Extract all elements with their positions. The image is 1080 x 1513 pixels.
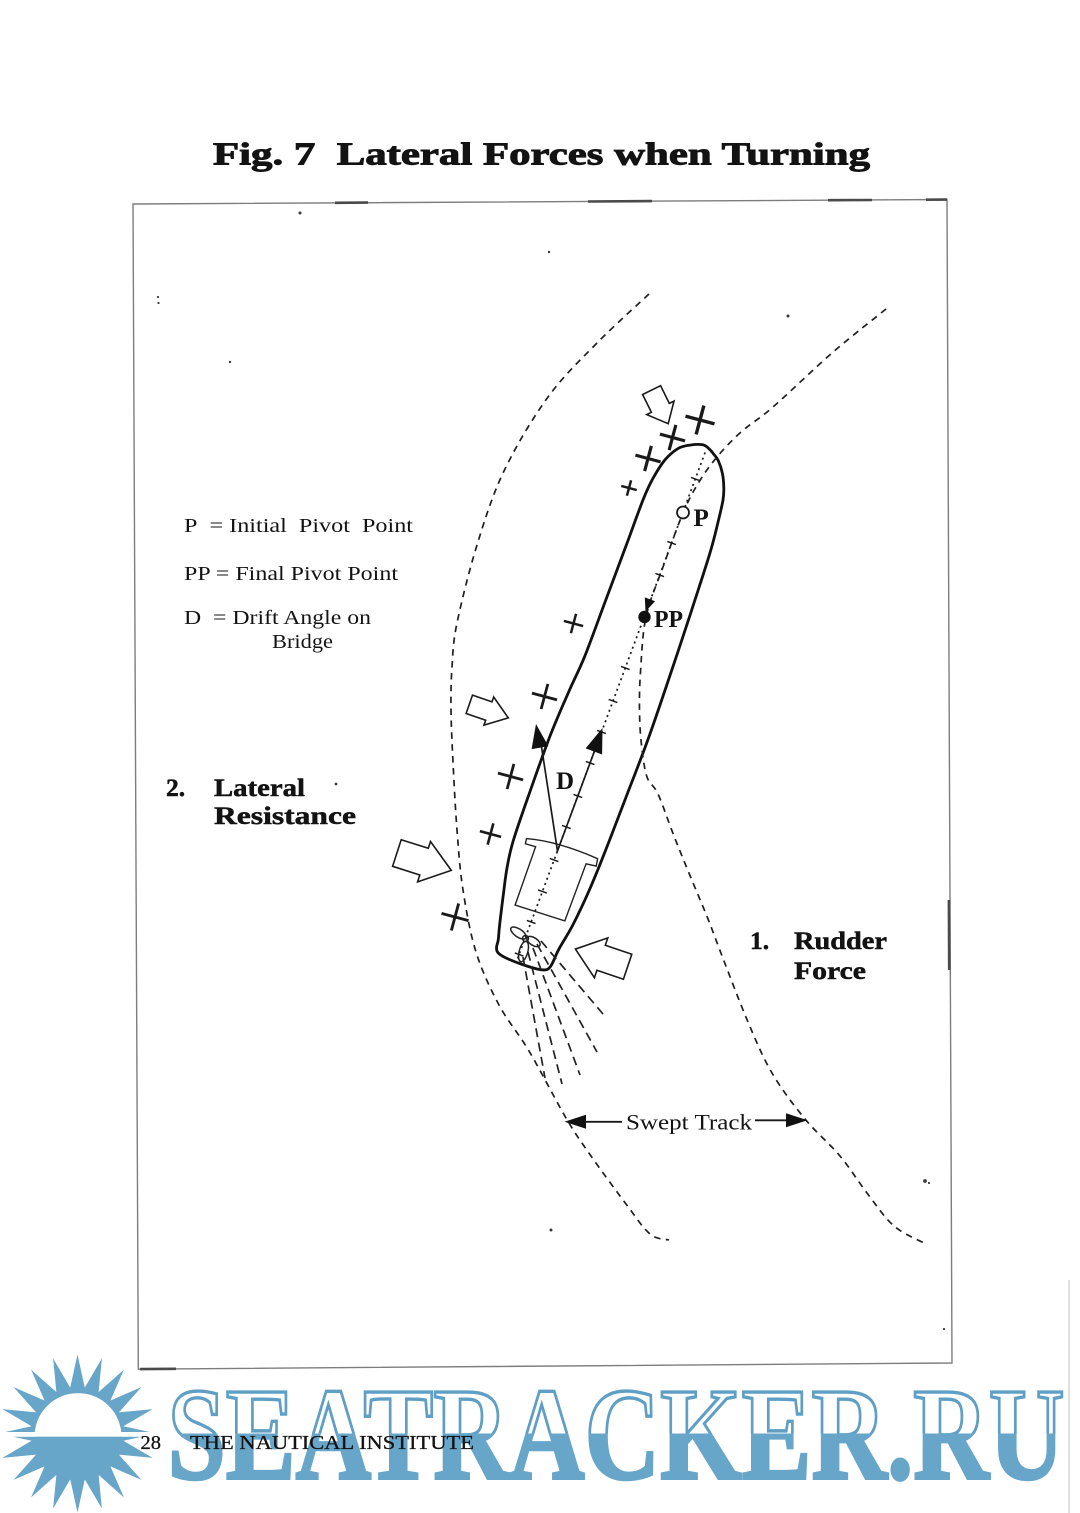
- svg-text:THE NAUTICAL INSTITUTE: THE NAUTICAL INSTITUTE: [190, 1432, 474, 1454]
- svg-text:D: D: [556, 768, 574, 795]
- svg-text:1.: 1.: [750, 926, 769, 955]
- svg-text:Resistance: Resistance: [214, 801, 356, 830]
- svg-text:Fig. 7 Lateral Forces when Tu: Fig. 7 Lateral Forces when Turning: [213, 137, 870, 172]
- svg-text:2.: 2.: [166, 773, 185, 802]
- svg-text:28: 28: [141, 1432, 162, 1454]
- svg-text:Lateral: Lateral: [214, 773, 305, 802]
- svg-text:Swept Track: Swept Track: [626, 1110, 752, 1135]
- svg-text:Bridge: Bridge: [272, 631, 333, 653]
- svg-text:PP = Final Pivot Point: PP = Final Pivot Point: [184, 563, 398, 585]
- svg-text:Force: Force: [794, 956, 866, 985]
- svg-text:P: P: [694, 505, 709, 532]
- svg-text:D = Drift Angle on: D = Drift Angle on: [184, 607, 371, 629]
- svg-text:PP: PP: [654, 607, 683, 633]
- svg-text:P = Initial Pivot Point: P = Initial Pivot Point: [184, 515, 413, 537]
- svg-text:Rudder: Rudder: [794, 926, 887, 955]
